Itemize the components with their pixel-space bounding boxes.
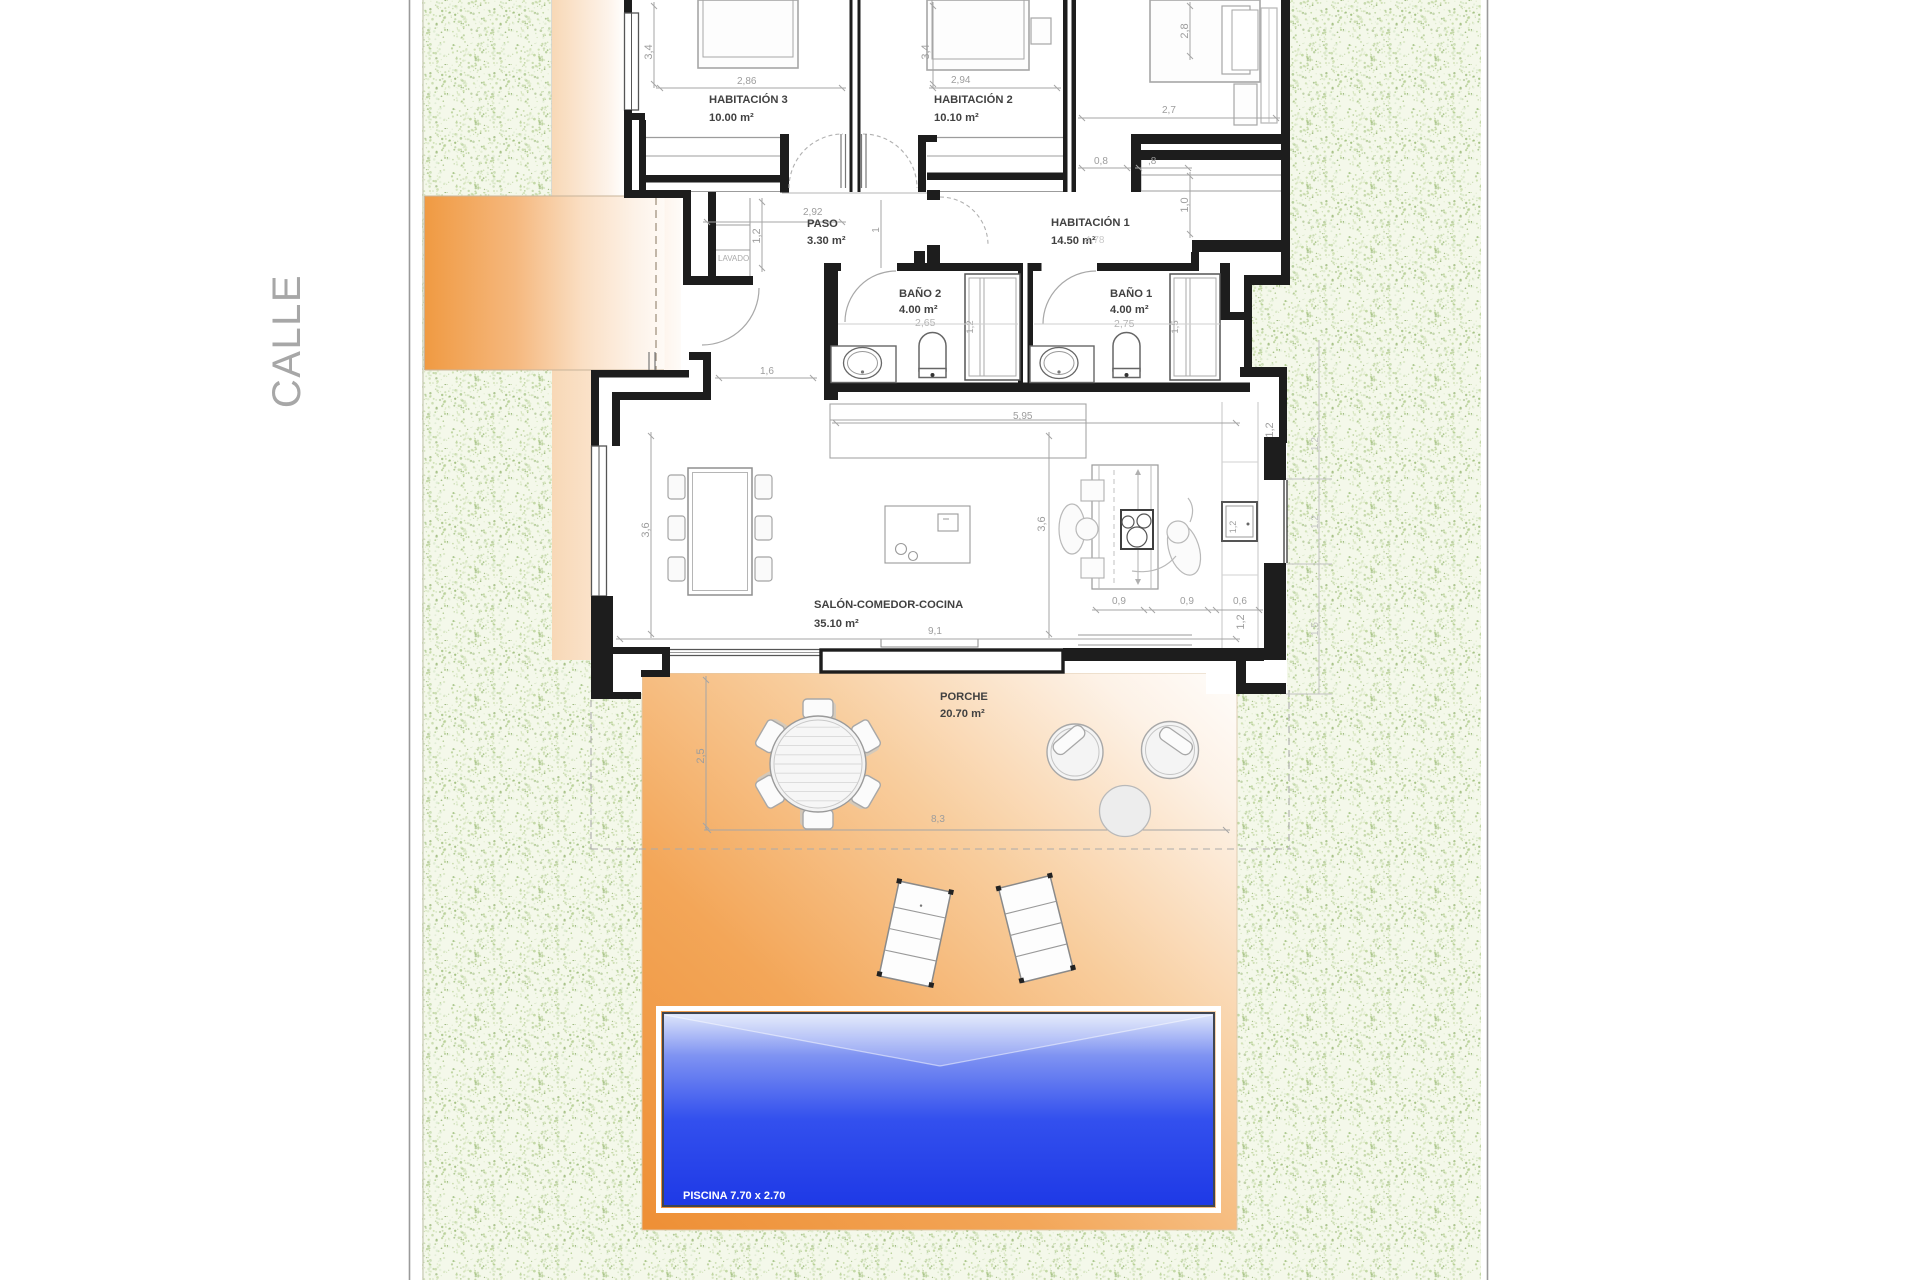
svg-text:1,2: 1,2 [1310, 515, 1321, 529]
svg-text:3,4: 3,4 [643, 44, 655, 59]
svg-text:HABITACIÓN 1: HABITACIÓN 1 [1051, 216, 1130, 229]
svg-text:20.70 m²: 20.70 m² [940, 708, 985, 720]
svg-text:10.10 m²: 10.10 m² [934, 112, 979, 124]
svg-text:BAÑO 1: BAÑO 1 [1110, 287, 1152, 300]
svg-text:10.00 m²: 10.00 m² [709, 112, 754, 124]
svg-text:3.30 m²: 3.30 m² [807, 235, 846, 247]
svg-text:3,6: 3,6 [1036, 516, 1048, 531]
svg-text:9,1: 9,1 [928, 626, 942, 637]
svg-text:3,6: 3,6 [640, 522, 652, 537]
svg-text:SALÓN-COMEDOR-COCINA: SALÓN-COMEDOR-COCINA [814, 598, 963, 611]
svg-text:4,78: 4,78 [1085, 235, 1105, 246]
svg-text:4.00 m²: 4.00 m² [1110, 304, 1149, 316]
svg-text:1,2: 1,2 [1228, 521, 1238, 534]
svg-text:PISCINA 7.70 x 2.70: PISCINA 7.70 x 2.70 [683, 1190, 785, 1202]
svg-text:PORCHE: PORCHE [940, 691, 988, 703]
svg-text:1,5: 1,5 [1170, 320, 1181, 333]
svg-text:HABITACIÓN 3: HABITACIÓN 3 [709, 93, 788, 106]
svg-text:2,86: 2,86 [737, 76, 757, 87]
svg-text:0,9: 0,9 [1112, 596, 1126, 607]
svg-text:1,2: 1,2 [1310, 437, 1321, 451]
svg-text:2,94: 2,94 [951, 75, 971, 86]
svg-text:1,6: 1,6 [760, 366, 774, 377]
svg-text:2,7: 2,7 [1162, 105, 1176, 116]
svg-text:4.00 m²: 4.00 m² [899, 304, 938, 316]
svg-text:BAÑO 2: BAÑO 2 [899, 287, 941, 300]
svg-text:35.10 m²: 35.10 m² [814, 618, 859, 630]
svg-text:2,8: 2,8 [1179, 23, 1191, 38]
svg-text:2,5: 2,5 [695, 748, 707, 763]
svg-text:,8: ,8 [1148, 156, 1157, 167]
svg-text:3,4: 3,4 [920, 44, 932, 59]
svg-text:1,2: 1,2 [1235, 614, 1247, 629]
svg-text:2,65: 2,65 [915, 317, 936, 329]
svg-text:LAVADO: LAVADO [718, 254, 749, 263]
svg-text:1,2: 1,2 [751, 228, 763, 243]
svg-text:PASO: PASO [807, 218, 838, 230]
svg-text:0,6: 0,6 [1233, 596, 1247, 607]
svg-text:5,95: 5,95 [1013, 411, 1033, 422]
svg-text:1,2: 1,2 [965, 320, 976, 333]
svg-text:1,2: 1,2 [1264, 422, 1276, 437]
svg-text:HABITACIÓN 2: HABITACIÓN 2 [934, 93, 1013, 106]
svg-text:CALLE: CALLE [265, 274, 309, 408]
svg-text:2,92: 2,92 [803, 207, 823, 218]
svg-text:1,0: 1,0 [1179, 197, 1191, 212]
svg-text:1,5: 1,5 [1310, 622, 1321, 636]
svg-text:8,3: 8,3 [931, 814, 945, 825]
svg-text:1: 1 [871, 227, 882, 233]
svg-text:0,9: 0,9 [1180, 596, 1194, 607]
svg-text:0,8: 0,8 [1094, 156, 1108, 167]
